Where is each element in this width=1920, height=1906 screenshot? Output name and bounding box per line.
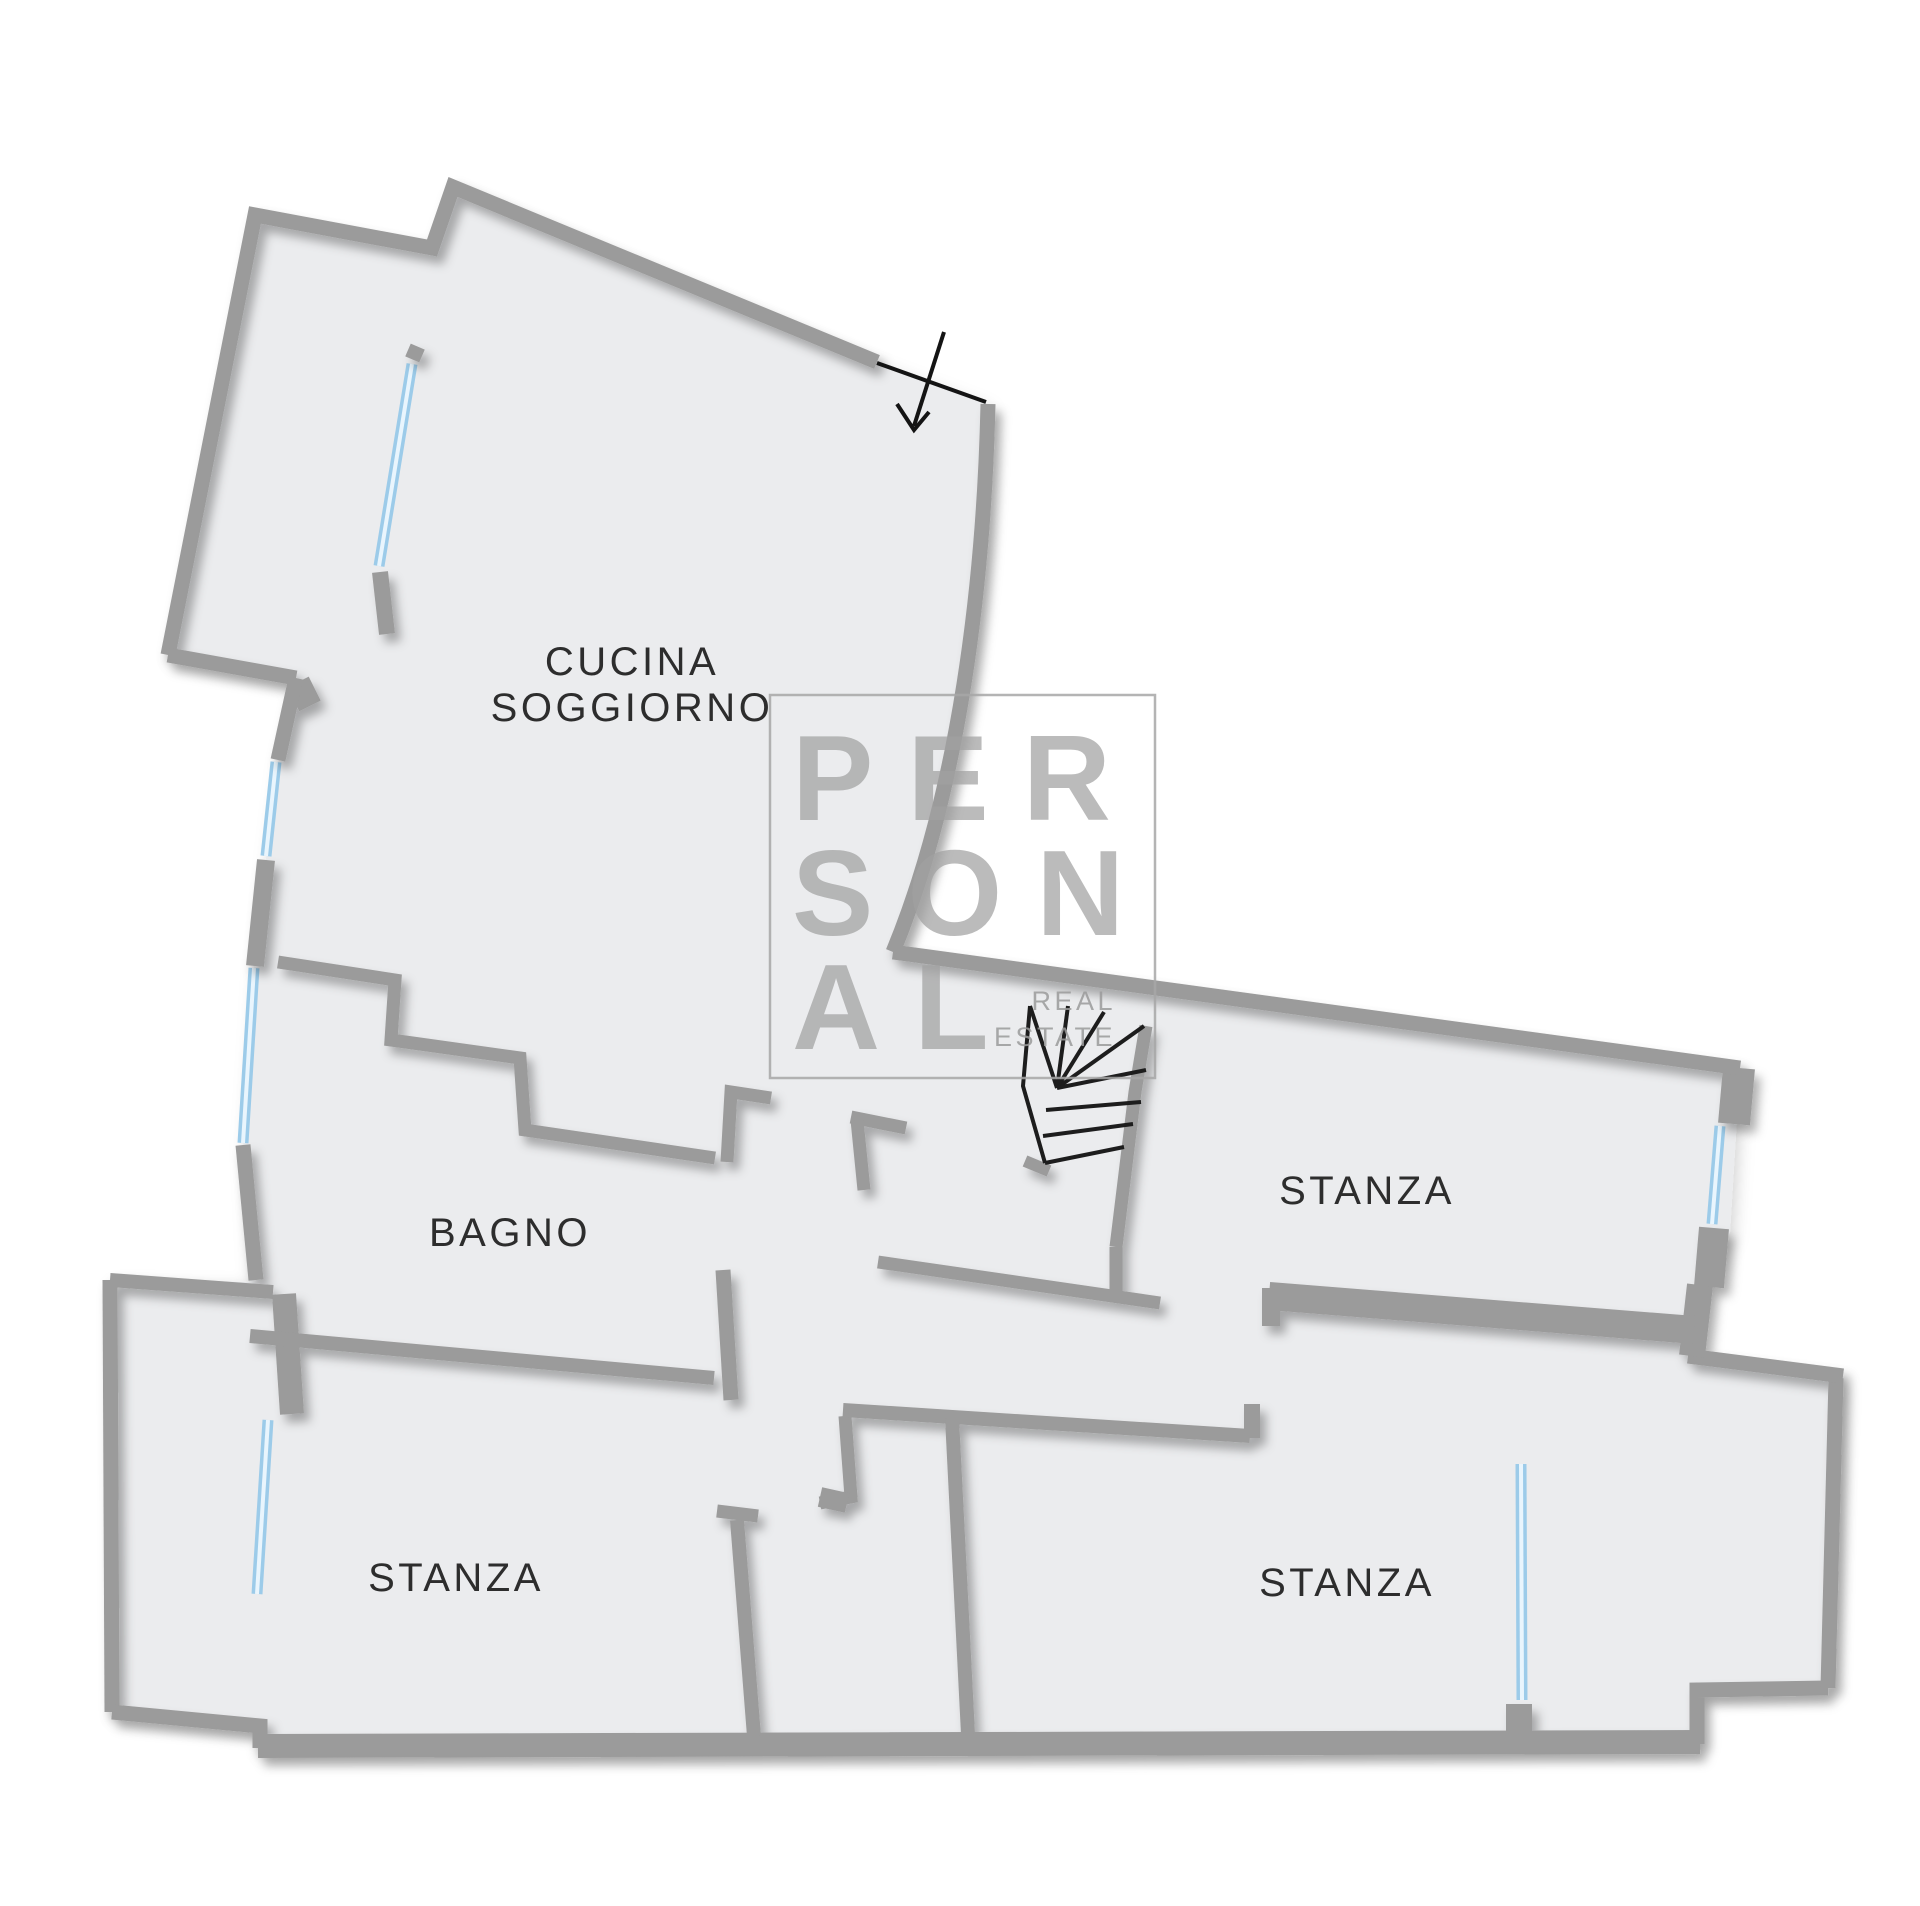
window-highlight [1521,1464,1522,1700]
label-stanza-bottom-left: STANZA [368,1556,544,1600]
watermark-tagline-1: REAL [1031,986,1116,1016]
wall-stair-door-jamb [857,1120,864,1190]
wall-right-wing-corner [1734,1068,1739,1124]
label-bagno: BAGNO [429,1211,591,1255]
wall-bottom-right-jog [1697,1688,1828,1744]
wall-bl-stanza-divider-cap [717,1511,758,1516]
watermark-row-3: AL [792,939,1023,1075]
wall-veranda-window-stub-top [408,350,422,356]
wall-bottom-main [258,1742,1700,1746]
wall-veranda-window-stub-bottom [380,572,387,634]
wall-right-wing-pier-low [1709,1228,1714,1287]
wall-east-bottom-room [1828,1378,1836,1688]
wall-bottom-left [112,1712,260,1748]
floor-plan-page: PER SON AL REAL ESTATE CUCINA SOGGIORNO … [0,0,1920,1906]
label-cucina: CUCINA [545,640,719,684]
wall-bagno-south-stub [723,1270,731,1400]
wall-hall-jog-cap [820,1497,847,1503]
wall-bump-left [110,1280,112,1712]
floor-plan-svg: PER SON AL REAL ESTATE CUCINA SOGGIORNO … [0,0,1920,1906]
watermark-tagline-2: ESTATE [994,1022,1116,1052]
label-soggiorno: SOGGIORNO [491,686,774,730]
label-stanza-right: STANZA [1279,1169,1455,1213]
wall-bump-pier [284,1294,292,1414]
wall-west-pier [255,860,266,966]
label-stanza-bottom-right: STANZA [1259,1561,1435,1605]
